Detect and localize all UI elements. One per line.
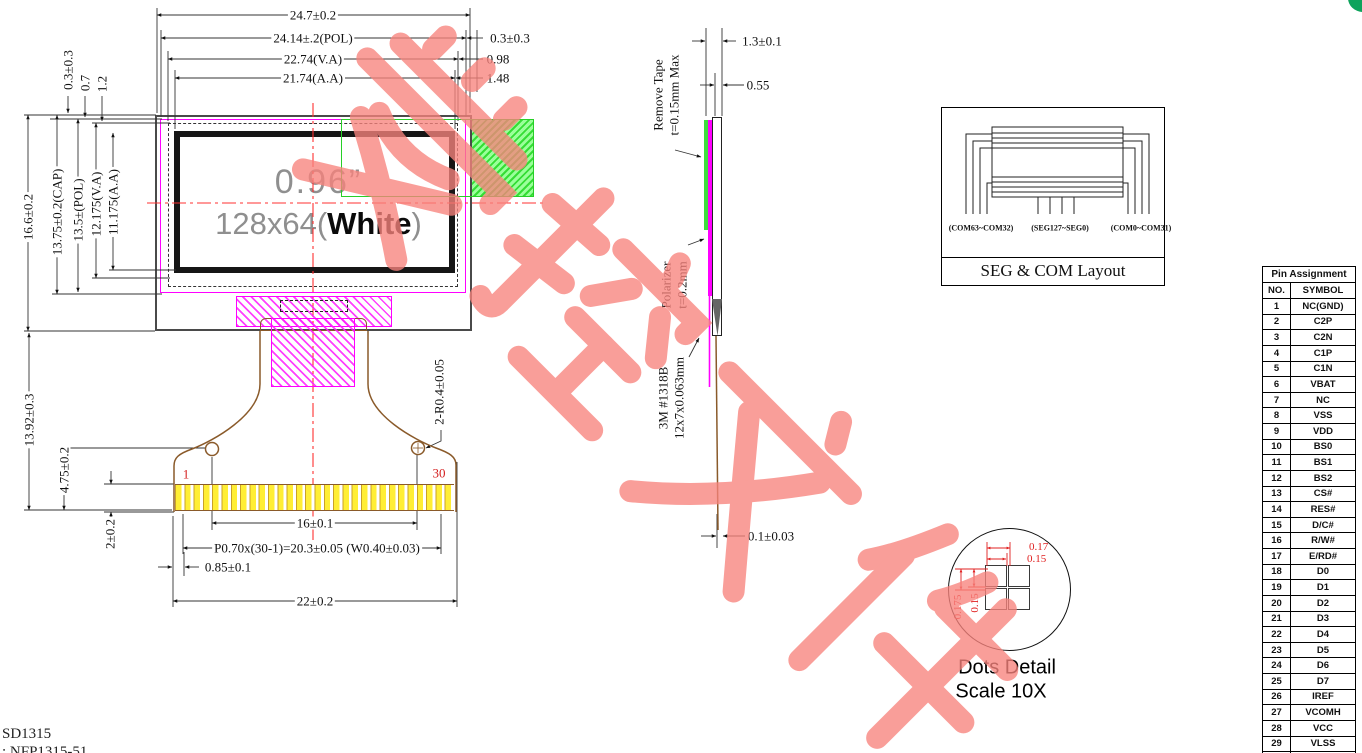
pin-no: 20 xyxy=(1263,596,1291,611)
display-resolution-label: 128x64(White) xyxy=(215,206,422,242)
pin-row: 21D3 xyxy=(1263,611,1355,627)
pin-no: 1 xyxy=(1263,299,1291,314)
pin-no: 14 xyxy=(1263,502,1291,517)
dim-height-aa: 11.175(A.A) xyxy=(107,167,120,237)
pin-row: 24D6 xyxy=(1263,657,1355,673)
pin-no: 11 xyxy=(1263,455,1291,470)
pin-no: 22 xyxy=(1263,627,1291,642)
pin-symbol: D7 xyxy=(1291,674,1355,689)
pin-row: 13CS# xyxy=(1263,486,1355,502)
dim-fpc-length: 13.92±0.3 xyxy=(23,392,36,449)
dots-detail-caption: Dots Detail xyxy=(958,657,1056,680)
seg-com-divider xyxy=(941,257,1165,258)
dim-edge-098: 0.98 xyxy=(485,53,512,66)
pin-symbol: BS1 xyxy=(1291,455,1355,470)
pin-row: 17E/RD# xyxy=(1263,548,1355,564)
pin-no: 27 xyxy=(1263,705,1291,720)
dim-side-fpc: 0.1±0.03 xyxy=(746,530,796,543)
pin-row: 16R/W# xyxy=(1263,532,1355,548)
pin-symbol: CS# xyxy=(1291,487,1355,502)
pin-symbol: NC(GND) xyxy=(1291,299,1355,314)
pin-symbol: R/W# xyxy=(1291,533,1355,548)
dim-edge-03: 0.3±0.3 xyxy=(488,32,532,45)
dim-pin-pitch: P0.70x(30-1)=20.3±0.05 (W0.40±0.03) xyxy=(212,542,422,555)
com-left-label: (COM63~COM32) xyxy=(949,224,1014,233)
dim-hole-offset: 4.75±0.2 xyxy=(58,445,71,495)
dot-square xyxy=(1008,588,1030,610)
pin-symbol: VCOMH xyxy=(1291,705,1355,720)
pin-symbol: NC xyxy=(1291,393,1355,408)
connector-dashed-rect xyxy=(280,300,348,312)
pin-no: 29 xyxy=(1263,737,1291,752)
pin30-label: 30 xyxy=(431,467,448,480)
pin-no: 28 xyxy=(1263,721,1291,736)
pin-symbol: D3 xyxy=(1291,612,1355,627)
fpc-pin-strip xyxy=(175,484,454,511)
pin-table-col-symbol: SYMBOL xyxy=(1291,283,1355,298)
pin-symbol: D2 xyxy=(1291,596,1355,611)
dot-dim-015h: 0.15 xyxy=(1025,553,1048,565)
pin-symbol: D4 xyxy=(1291,627,1355,642)
pin-symbol: RES# xyxy=(1291,502,1355,517)
dim-lt-07: 0.7 xyxy=(79,73,92,93)
pin-no: 8 xyxy=(1263,408,1291,423)
dot-square xyxy=(1008,565,1030,587)
pin-row: 14RES# xyxy=(1263,501,1355,517)
pin-row: 19D1 xyxy=(1263,579,1355,595)
pin-table-title: Pin Assignment xyxy=(1263,267,1355,282)
pin-symbol: VLSS xyxy=(1291,737,1355,752)
dot-dim-017: 0.17 xyxy=(1027,541,1050,553)
dot-dim-0175: 0.175 xyxy=(952,593,964,622)
dim-fpc-width: 22±0.2 xyxy=(295,595,335,608)
dim-pin-height: 2±0.2 xyxy=(104,517,117,551)
footer-model: : NFP1315-51 xyxy=(2,744,87,753)
pin-no: 16 xyxy=(1263,533,1291,548)
side-glass xyxy=(712,117,722,336)
pin-no: 6 xyxy=(1263,377,1291,392)
pin-table-col-no: NO. xyxy=(1263,283,1291,298)
dots-detail-scale: Scale 10X xyxy=(955,681,1046,704)
pin-row: 23D5 xyxy=(1263,642,1355,658)
adhesive-note: 3M #1318B12x7x0.063mm xyxy=(655,357,686,439)
pin-symbol: BS0 xyxy=(1291,440,1355,455)
dim-lt-03: 0.3±0.3 xyxy=(62,48,75,92)
pin-no: 23 xyxy=(1263,643,1291,658)
pin-no: 13 xyxy=(1263,487,1291,502)
side-polarizer-strip xyxy=(708,120,712,296)
pin-no: 5 xyxy=(1263,362,1291,377)
pin-no: 25 xyxy=(1263,674,1291,689)
pin-no: 26 xyxy=(1263,690,1291,705)
dim-width-pol: 24.14±.2(POL) xyxy=(271,32,354,45)
pin-no: 7 xyxy=(1263,393,1291,408)
pin-assignment-table: Pin Assignment NO. SYMBOL 1NC(GND)2C2P3C… xyxy=(1262,266,1356,753)
pin-symbol: D5 xyxy=(1291,643,1355,658)
footer-controller: SD1315 xyxy=(2,726,51,743)
pin-no: 18 xyxy=(1263,565,1291,580)
pin-no: 3 xyxy=(1263,330,1291,345)
pin-no: 10 xyxy=(1263,440,1291,455)
dim-hole-pitch: 16±0.1 xyxy=(295,517,335,530)
pin-no: 19 xyxy=(1263,580,1291,595)
pin-row: 6VBAT xyxy=(1263,376,1355,392)
pin-no: 2 xyxy=(1263,315,1291,330)
pin-symbol: D0 xyxy=(1291,565,1355,580)
pin-symbol: C1N xyxy=(1291,362,1355,377)
dim-lt-12: 1.2 xyxy=(96,74,109,94)
pin-symbol: D6 xyxy=(1291,658,1355,673)
pin-row: 20D2 xyxy=(1263,595,1355,611)
pin-table-header: NO. SYMBOL xyxy=(1263,282,1355,298)
pin-row: 27VCOMH xyxy=(1263,704,1355,720)
pin-row: 28VCC xyxy=(1263,720,1355,736)
pin-no: 9 xyxy=(1263,424,1291,439)
pin-no: 12 xyxy=(1263,471,1291,486)
pin-row: 22D4 xyxy=(1263,626,1355,642)
pin-table-body: 1NC(GND)2C2P3C2N4C1P5C1N6VBAT7NC8VSS9VDD… xyxy=(1263,298,1355,753)
dim-pin-margin: 0.85±0.1 xyxy=(203,561,253,574)
pin-row: 5C1N xyxy=(1263,361,1355,377)
pin-symbol: VBAT xyxy=(1291,377,1355,392)
pin-symbol: D1 xyxy=(1291,580,1355,595)
dim-side-total: 1.3±0.1 xyxy=(740,35,784,48)
pin-row: 10BS0 xyxy=(1263,439,1355,455)
corner-green-badge xyxy=(1348,0,1362,12)
dim-hole-radius: 2-R0.4±0.05 xyxy=(433,357,446,427)
pin-no: 17 xyxy=(1263,549,1291,564)
dim-edge-148: 1.48 xyxy=(485,72,512,85)
pin-symbol: IREF xyxy=(1291,690,1355,705)
pin1-label: 1 xyxy=(181,468,192,481)
pin-row: 18D0 xyxy=(1263,564,1355,580)
seg-com-caption: SEG & COM Layout xyxy=(981,261,1126,281)
dim-height-total: 16.6±0.2 xyxy=(22,192,35,242)
dim-height-pol: 13.5±(POL) xyxy=(72,176,85,243)
pin-symbol: E/RD# xyxy=(1291,549,1355,564)
pin-no: 24 xyxy=(1263,658,1291,673)
seg-label: (SEG127~SEG0) xyxy=(1031,224,1089,233)
remove-tape-outline xyxy=(341,119,534,197)
pin-row: 15D/C# xyxy=(1263,517,1355,533)
dot-square xyxy=(985,588,1007,610)
pin-symbol: VSS xyxy=(1291,408,1355,423)
pin-row: 12BS2 xyxy=(1263,470,1355,486)
pin-row: 7NC xyxy=(1263,392,1355,408)
polarizer-note: Polarizert=0.2mm xyxy=(658,261,689,308)
pin-symbol: BS2 xyxy=(1291,471,1355,486)
connector-hatch-narrow xyxy=(271,318,355,387)
dot-square xyxy=(985,565,1007,587)
dim-width-aa: 21.74(A.A) xyxy=(281,72,345,85)
pin-row: 2C2P xyxy=(1263,314,1355,330)
pin-row: 1NC(GND) xyxy=(1263,298,1355,314)
pin-row: 11BS1 xyxy=(1263,454,1355,470)
pin-row: 26IREF xyxy=(1263,689,1355,705)
mechanical-drawing-sheet: 0.96” 128x64(White) (COM63~COM32) (SEG12… xyxy=(0,0,1362,753)
pin-row: 9VDD xyxy=(1263,423,1355,439)
pin-symbol: D/C# xyxy=(1291,518,1355,533)
pin-row: 29VLSS xyxy=(1263,736,1355,752)
pin-row: 3C2N xyxy=(1263,329,1355,345)
dim-width-va: 22.74(V.A) xyxy=(282,53,344,66)
pin-symbol: VCC xyxy=(1291,721,1355,736)
pin-row: 25D7 xyxy=(1263,673,1355,689)
dim-height-cap: 13.75±0.2(CAP) xyxy=(51,167,64,258)
dim-height-va: 12.175(V.A) xyxy=(90,170,103,239)
pin-symbol: C2N xyxy=(1291,330,1355,345)
pin-symbol: C2P xyxy=(1291,315,1355,330)
pin-symbol: C1P xyxy=(1291,346,1355,361)
pin-no: 21 xyxy=(1263,612,1291,627)
seg-com-box xyxy=(941,107,1165,286)
pin-row: 4C1P xyxy=(1263,345,1355,361)
pin-no: 4 xyxy=(1263,346,1291,361)
pin-symbol: VDD xyxy=(1291,424,1355,439)
remove-tape-note: Remove Tapet=0.15mm Max xyxy=(650,55,681,136)
com-right-label: (COM0~COM31) xyxy=(1111,224,1172,233)
dot-dim-015v: 0.15 xyxy=(969,591,981,614)
pin-row: 8VSS xyxy=(1263,407,1355,423)
dim-side-glass: 0.55 xyxy=(745,79,772,92)
pin-no: 15 xyxy=(1263,518,1291,533)
dim-width-total: 24.7±0.2 xyxy=(288,9,338,22)
